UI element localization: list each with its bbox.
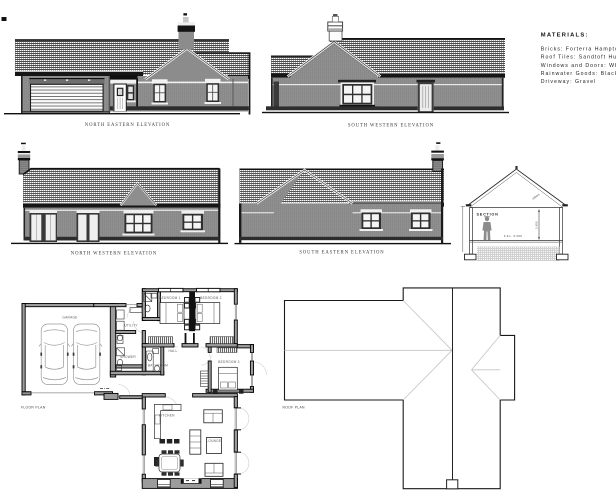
svg-text:HALL: HALL xyxy=(169,349,178,353)
svg-text:2.400: 2.400 xyxy=(535,221,539,229)
svg-text:BATHROOM: BATHROOM xyxy=(148,363,168,367)
svg-text:FLOOR PLAN: FLOOR PLAN xyxy=(21,405,46,409)
svg-text:BEDROOM 3: BEDROOM 3 xyxy=(218,360,239,364)
svg-text:GARAGE: GARAGE xyxy=(62,316,77,320)
svg-text:Bricks: Forterra Hampton Rural: Bricks: Forterra Hampton Rural Blend xyxy=(541,47,616,53)
svg-text:SOUTH EASTERN ELEVATION: SOUTH EASTERN ELEVATION xyxy=(299,251,384,256)
svg-text:UTILITY: UTILITY xyxy=(124,323,138,327)
svg-text:SECTION: SECTION xyxy=(477,212,499,216)
svg-text:ROOF PLAN: ROOF PLAN xyxy=(283,405,306,409)
svg-text:SHOWER: SHOWER xyxy=(120,355,136,359)
svg-text:Driveway: Gravel: Driveway: Gravel xyxy=(541,79,597,85)
svg-text:SOUTH WESTERN ELEVATION: SOUTH WESTERN ELEVATION xyxy=(348,124,434,129)
svg-text:MATERIALS:: MATERIALS: xyxy=(541,32,589,38)
svg-text:Rainwater Goods: Black UPVC Gu: Rainwater Goods: Black UPVC Guttering xyxy=(541,71,616,77)
svg-text:NORTH EASTERN ELEVATION: NORTH EASTERN ELEVATION xyxy=(85,123,170,128)
svg-text:Windows and Doors: White UPVC: Windows and Doors: White UPVC Double Gla… xyxy=(541,63,616,69)
svg-text:NORTH WESTERN ELEVATION: NORTH WESTERN ELEVATION xyxy=(71,252,157,257)
svg-text:BEDROOM 2: BEDROOM 2 xyxy=(200,296,221,300)
svg-text:KITCHEN: KITCHEN xyxy=(159,413,175,417)
svg-text:BEDROOM 1: BEDROOM 1 xyxy=(159,296,180,300)
svg-text:Roof Tiles: Sandtoft Humber Pl: Roof Tiles: Sandtoft Humber Plain xyxy=(541,55,616,61)
svg-text:F.F.L. 0.000: F.F.L. 0.000 xyxy=(504,234,522,238)
svg-text:LOUNGE: LOUNGE xyxy=(206,439,221,443)
